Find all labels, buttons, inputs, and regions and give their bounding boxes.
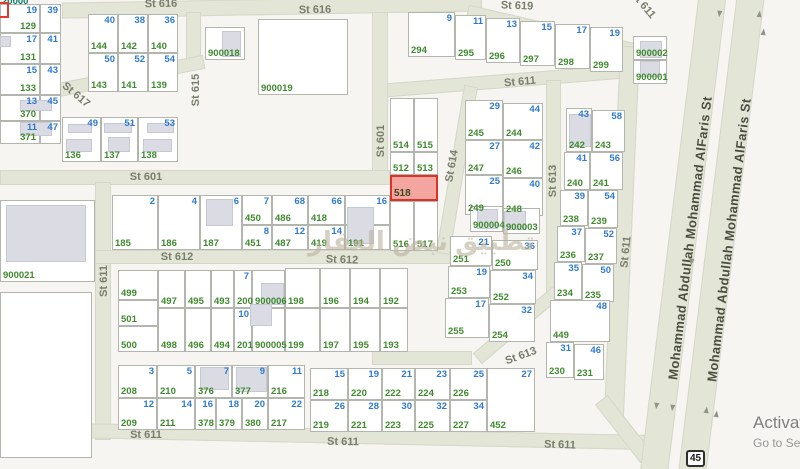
parcel-number: 451 [245,238,261,249]
lot-number: 30 [401,401,412,412]
parcel-number: 496 [188,340,204,351]
street-label: St 613 [504,345,539,367]
parcel-41[interactable]: 41 [40,33,61,64]
parcel-497[interactable]: 497 [158,270,185,308]
lot-number: 9 [447,13,452,24]
lot-number: 58 [611,111,622,122]
lot-number: 2 [150,196,155,207]
parcel-number: 900006 [255,296,287,307]
parcel-number: 248 [506,204,522,215]
street-label: St 601 [130,171,162,183]
road-segment [0,170,390,185]
parcel-193[interactable]: 193 [380,308,408,352]
parcel-number: 247 [468,163,484,174]
parcel-495[interactable]: 495 [185,270,211,308]
lot-number: 27 [489,141,500,152]
parcel-number: 493 [214,296,230,307]
activation-line2: Go to Set [753,436,800,450]
parcel-number: 380 [245,418,261,429]
parcel-number: 900021 [3,270,35,281]
parcel-133[interactable]: 15133 [0,64,40,95]
parcel-number: 243 [595,140,611,151]
parcel-number: 512 [393,163,409,174]
parcel-number: 513 [417,163,433,174]
lot-number: 36 [164,15,175,26]
parcel-486[interactable]: 68486 [272,195,308,225]
parcel-299[interactable]: 19299 [590,27,623,72]
parcel-498[interactable]: 498 [158,308,185,352]
parcel-number: 220 [351,388,367,399]
parcel-number: 418 [311,213,327,224]
lot-number: 50 [104,54,115,65]
building-footprint [0,36,11,47]
corner-highlight-fragment [0,2,9,18]
parcel-218[interactable]: 15218 [310,368,348,400]
parcel-number: 227 [453,420,469,431]
parcel-number: 219 [313,420,329,431]
lot-number: 51 [124,118,135,129]
parcel-number: 499 [121,288,137,299]
parcel-number: 378 [198,418,214,429]
parcel-number: 494 [214,340,230,351]
parcel-244[interactable]: 44244 [503,103,543,140]
street-label: St 601 [375,125,387,157]
parcel-number: 498 [161,340,177,351]
activation-line1: Activat [753,413,800,433]
lot-number: 19 [476,267,487,278]
lot-number: 40 [529,179,540,190]
parcel-number: 515 [417,140,433,151]
parcel-number: 231 [577,368,593,379]
lot-number: 68 [294,196,305,207]
lot-number: 45 [47,96,58,107]
lot-number: 32 [521,305,532,316]
parcel-449[interactable]: 48449 [550,300,610,342]
parcel-487[interactable]: 12487 [272,225,308,250]
traffic-direction-arrow-icon: ▲ [758,26,768,39]
parcel-number: 296 [489,51,505,62]
parcel-number: 254 [492,330,508,341]
app-watermark: تطبيق نبض العقار [308,226,535,257]
parcel-139[interactable]: 54139 [148,53,178,92]
lot-number: 56 [609,153,620,164]
parcel-194[interactable]: 194 [350,268,380,308]
parcel-143[interactable]: 50143 [88,53,118,92]
parcel-900019[interactable]: 900019 [258,19,348,95]
parcel-number: 497 [161,296,177,307]
parcel-number: 144 [91,41,107,52]
parcel-number: 240 [567,178,583,189]
lot-number: 47 [47,122,58,133]
lot-number: 19 [609,28,620,39]
parcel-number: 295 [458,48,474,59]
parcel-298[interactable]: 17298 [555,24,590,69]
lot-number: 6 [234,196,239,207]
lot-number: 41 [47,34,58,45]
parcel-unlabeled[interactable] [0,292,92,458]
lot-number: 43 [47,65,58,76]
parcel-210[interactable]: 5210 [157,365,195,398]
street-label: St 615 [190,74,202,106]
lot-number: 8 [264,226,269,237]
traffic-direction-arrow-icon: ▼ [651,400,661,413]
parcel-number: 194 [353,296,369,307]
parcel-243[interactable]: 58243 [592,110,625,152]
parcel-number: 230 [549,366,565,377]
parcel-number: 186 [161,238,177,249]
parcel-39[interactable]: 39 [40,4,61,33]
parcel-number: 379 [219,418,235,429]
parcel-379[interactable]: 18379 [216,398,242,430]
parcel-238[interactable]: 39238 [560,190,588,226]
parcel-number: 192 [383,296,399,307]
parcel-295[interactable]: 11295 [455,15,486,60]
parcel-144[interactable]: 40144 [88,14,118,53]
parcel-number: 244 [506,128,522,139]
parcel-number: 450 [245,213,261,224]
parcel-452[interactable]: 27452 [487,368,535,432]
street-label: St 612 [161,251,193,263]
lot-number: 10 [238,309,249,320]
parcel-number: 900018 [208,48,240,59]
parcel-221[interactable]: 28221 [348,400,382,432]
lot-number: 9 [260,366,265,377]
street-label: St 619 [501,0,534,13]
parcel-number: 200 [237,296,253,307]
lot-number: 12 [143,399,154,410]
lot-number: 11 [473,16,483,27]
parcel-378[interactable]: 16378 [195,398,216,430]
parcel-number: 500 [121,340,137,351]
lot-number: 17 [26,34,37,45]
street-label: St 611 [98,265,110,297]
parcel-253[interactable]: 19253 [448,266,490,298]
parcel-number: 241 [593,178,609,189]
parcel-number: 245 [468,128,484,139]
lot-number: 39 [47,5,58,16]
lot-number: 17 [475,299,486,310]
parcel-number: 218 [313,388,329,399]
parcel-number: 208 [121,386,137,397]
parcel-number: 133 [20,83,36,94]
parcel-number: 199 [288,340,304,351]
parcel-196[interactable]: 196 [320,268,350,308]
parcel-297[interactable]: 15297 [520,21,555,66]
lot-number: 52 [603,229,614,240]
parcel-500[interactable]: 500 [118,326,158,352]
traffic-direction-arrow-icon: ▲ [701,404,711,417]
parcel-217[interactable]: 22217 [268,398,305,430]
lot-number: 48 [596,301,607,312]
parcel-223[interactable]: 30223 [382,400,415,432]
parcel-number: 140 [151,41,167,52]
parcel-513[interactable]: 513 [414,152,438,175]
parcel-number: 253 [451,286,467,297]
parcel-43[interactable]: 43 [40,64,61,95]
parcel-230[interactable]: 31230 [546,342,574,378]
parcel-number: 129 [20,21,36,32]
parcel-number: 250 [495,258,511,269]
parcel-380[interactable]: 20380 [242,398,268,430]
parcel-493[interactable]: 493 [211,270,234,308]
lot-number: 26 [334,401,345,412]
parcel-142[interactable]: 38142 [118,14,148,53]
traffic-direction-arrow-icon: ▼ [714,8,724,21]
parcel-number: 514 [393,140,409,151]
parcel-514[interactable]: 514 [390,98,414,152]
parcel-209[interactable]: 12209 [118,398,157,430]
parcel-499[interactable]: 499 [118,270,158,300]
parcel-186[interactable]: 4186 [158,195,200,250]
lot-number: 28 [368,401,379,412]
traffic-direction-arrow-icon: ▼ [667,402,677,415]
parcel-512[interactable]: 512 [390,152,414,175]
parcel-195[interactable]: 195 [350,308,380,352]
street-label: St 616 [299,4,332,17]
lot-number: 15 [334,369,345,380]
lot-number: 53 [164,118,175,129]
parcel-number: 518 [394,188,411,199]
parcel-518[interactable]: 518 [390,175,438,201]
parcel-231[interactable]: 46231 [574,344,604,380]
parcel-140[interactable]: 36140 [148,14,178,53]
parcel-number: 225 [418,420,434,431]
lot-number: 16 [202,399,213,410]
lot-number: 39 [574,191,585,202]
lot-number: 16 [376,196,387,207]
parcel-number: 452 [490,420,506,431]
parcel-number: 138 [141,150,157,161]
parcel-number: 900019 [261,83,293,94]
parcel-number: 223 [385,420,401,431]
parcel-254[interactable]: 32254 [489,304,535,342]
parcel-number: 209 [121,418,137,429]
parcel-240[interactable]: 41240 [564,152,590,190]
parcel-number: 137 [104,150,120,161]
parcel-number: 255 [448,326,464,337]
parcel-216[interactable]: 11216 [268,365,305,398]
traffic-direction-arrow-icon: ▼ [686,256,696,269]
parcel-496[interactable]: 496 [185,308,211,352]
lot-number: 5 [187,366,192,377]
street-label: St 611 [618,236,633,269]
lot-number: 41 [576,153,587,164]
parcel-239[interactable]: 54239 [588,190,618,228]
parcel-number: 495 [188,296,204,307]
parcel-number: 197 [323,340,339,351]
lot-number: 22 [291,399,302,410]
parcel-number: 487 [275,238,291,249]
parcel-294[interactable]: 9294 [408,12,455,57]
parcel-map-canvas[interactable]: تطبيق نبض العقار 20000 45 Activat Go to … [0,0,800,469]
parcel-900002[interactable]: 900002 [633,36,667,60]
lot-number: 32 [436,401,447,412]
parcel-number: 238 [563,214,579,225]
lot-number: 52 [134,54,145,65]
parcel-number: 252 [493,292,509,303]
parcel-241[interactable]: 56241 [590,152,623,190]
lot-number: 11 [292,366,302,377]
parcel-198[interactable]: 198 [285,268,320,308]
lot-number: 19 [368,369,379,380]
road-segment [95,182,111,440]
parcel-225[interactable]: 32225 [415,400,450,432]
parcel-450[interactable]: 7450 [242,195,272,225]
street-label: St 611 [628,0,658,21]
windows-activation-watermark: Activat Go to Set [753,413,800,450]
parcel-number: 217 [271,418,287,429]
lot-number: 37 [571,227,582,238]
parcel-227[interactable]: 34227 [450,400,487,432]
lot-number: 7 [244,271,249,282]
lot-number: 34 [522,271,533,282]
lot-number: 54 [604,191,615,202]
building-footprint [206,199,233,226]
parcel-494[interactable]: 494 [211,308,234,352]
parcel-number: 195 [353,340,369,351]
parcel-192[interactable]: 192 [380,268,408,308]
parcel-246[interactable]: 42246 [503,140,543,178]
lot-number: 66 [331,196,342,207]
parcel-number: 486 [275,213,291,224]
parcel-number: 235 [585,290,601,301]
lot-number: 44 [529,104,540,115]
parcel-number: 246 [506,166,522,177]
street-label: St 611 [504,75,537,90]
parcel-200[interactable]: 7200 [234,270,252,308]
parcel-number: 193 [383,340,399,351]
parcel-number: 131 [20,52,36,63]
parcel-235[interactable]: 50235 [582,264,614,302]
parcel-number: 299 [593,60,609,71]
lot-number: 4 [192,196,197,207]
lot-number: 20 [254,399,265,410]
parcel-296[interactable]: 13296 [486,18,520,63]
parcel-number: 449 [553,330,569,341]
lot-number: 40 [104,15,115,26]
street-label: St 611 [327,436,359,449]
street-label: St 611 [544,438,576,451]
parcel-number: 237 [588,252,604,263]
parcel-number: 297 [523,54,539,65]
parcel-208[interactable]: 3208 [118,365,157,398]
parcel-211[interactable]: 14211 [157,398,195,430]
parcel-252[interactable]: 34252 [490,270,536,304]
road-segment [372,351,472,365]
parcel-number: 185 [115,238,131,249]
parcel-number: 370 [20,109,36,120]
lot-number: 15 [26,65,37,76]
parcel-number: 236 [560,250,576,261]
parcel-number: 376 [198,386,214,397]
parcel-199[interactable]: 199 [285,308,320,352]
parcel-number: 900001 [636,72,668,83]
street-label: St 613 [547,165,559,197]
parcel-number: 900005 [255,340,287,351]
parcel-220[interactable]: 19220 [348,368,382,400]
parcel-number: 226 [453,388,469,399]
parcel-number: 196 [323,296,339,307]
lot-number: 17 [576,25,587,36]
parcel-185[interactable]: 2185 [112,195,158,250]
building-footprint [6,205,86,262]
parcel-number: 142 [121,41,137,52]
lot-number: 21 [401,369,412,380]
parcel-number: 900002 [636,48,668,59]
parcel-number: 224 [418,388,434,399]
parcel-255[interactable]: 17255 [445,298,489,338]
parcel-number: 136 [65,150,81,161]
lot-number: 46 [590,345,601,356]
lot-number: 35 [568,263,579,274]
parcel-219[interactable]: 26219 [310,400,348,432]
parcel-number: 501 [121,314,137,325]
parcel-234[interactable]: 35234 [554,262,582,300]
parcel-number: 143 [91,80,107,91]
lot-number: 14 [181,399,192,410]
building-footprint [250,304,272,326]
parcel-226[interactable]: 25226 [450,368,487,400]
lot-number: 43 [578,109,589,120]
parcel-515[interactable]: 515 [414,98,438,152]
parcel-number: 242 [569,140,585,151]
traffic-direction-arrow-icon: ▲ [754,8,764,21]
parcel-222[interactable]: 21222 [382,368,415,400]
lot-number: 7 [224,366,229,377]
parcel-197[interactable]: 197 [320,308,350,352]
lot-number: 13 [506,19,517,30]
parcel-141[interactable]: 52141 [118,53,148,92]
parcel-224[interactable]: 23224 [415,368,450,400]
parcel-number: 141 [121,80,137,91]
parcel-number: 211 [160,418,175,429]
parcel-245[interactable]: 29245 [465,100,503,140]
lot-number: 34 [473,401,484,412]
parcel-number: 221 [351,420,367,431]
lot-number: 3 [149,366,154,377]
lot-number: 25 [489,176,500,187]
parcel-number: 239 [591,216,607,227]
parcel-237[interactable]: 52237 [585,228,617,264]
parcel-451[interactable]: 8451 [242,225,272,250]
parcel-number: 249 [468,203,484,214]
parcel-501[interactable]: 501 [118,300,158,326]
traffic-direction-arrow-icon: ▲ [711,408,721,421]
parcel-number: 210 [160,386,176,397]
parcel-number: 216 [271,386,287,397]
lot-number: 25 [473,369,484,380]
parcel-number: 222 [385,388,401,399]
parcel-number: 371 [20,132,36,143]
parcel-418[interactable]: 66418 [308,195,345,225]
lot-number: 12 [294,226,305,237]
route-45-shield-icon: 45 [686,450,705,467]
lot-number: 49 [87,118,98,129]
lot-number: 29 [489,101,500,112]
parcel-236[interactable]: 37236 [557,226,585,262]
lot-number: 38 [134,15,145,26]
parcel-number: 201 [237,340,253,351]
parcel-number: 198 [288,296,304,307]
street-label: St 611 [130,429,162,441]
lot-number: 7 [264,196,269,207]
lot-number: 13 [26,96,37,107]
parcel-number: 187 [203,238,219,249]
lot-number: 27 [521,369,532,380]
parcel-247[interactable]: 27247 [465,140,503,175]
lot-number: 15 [541,22,552,33]
lot-number: 42 [529,141,540,152]
